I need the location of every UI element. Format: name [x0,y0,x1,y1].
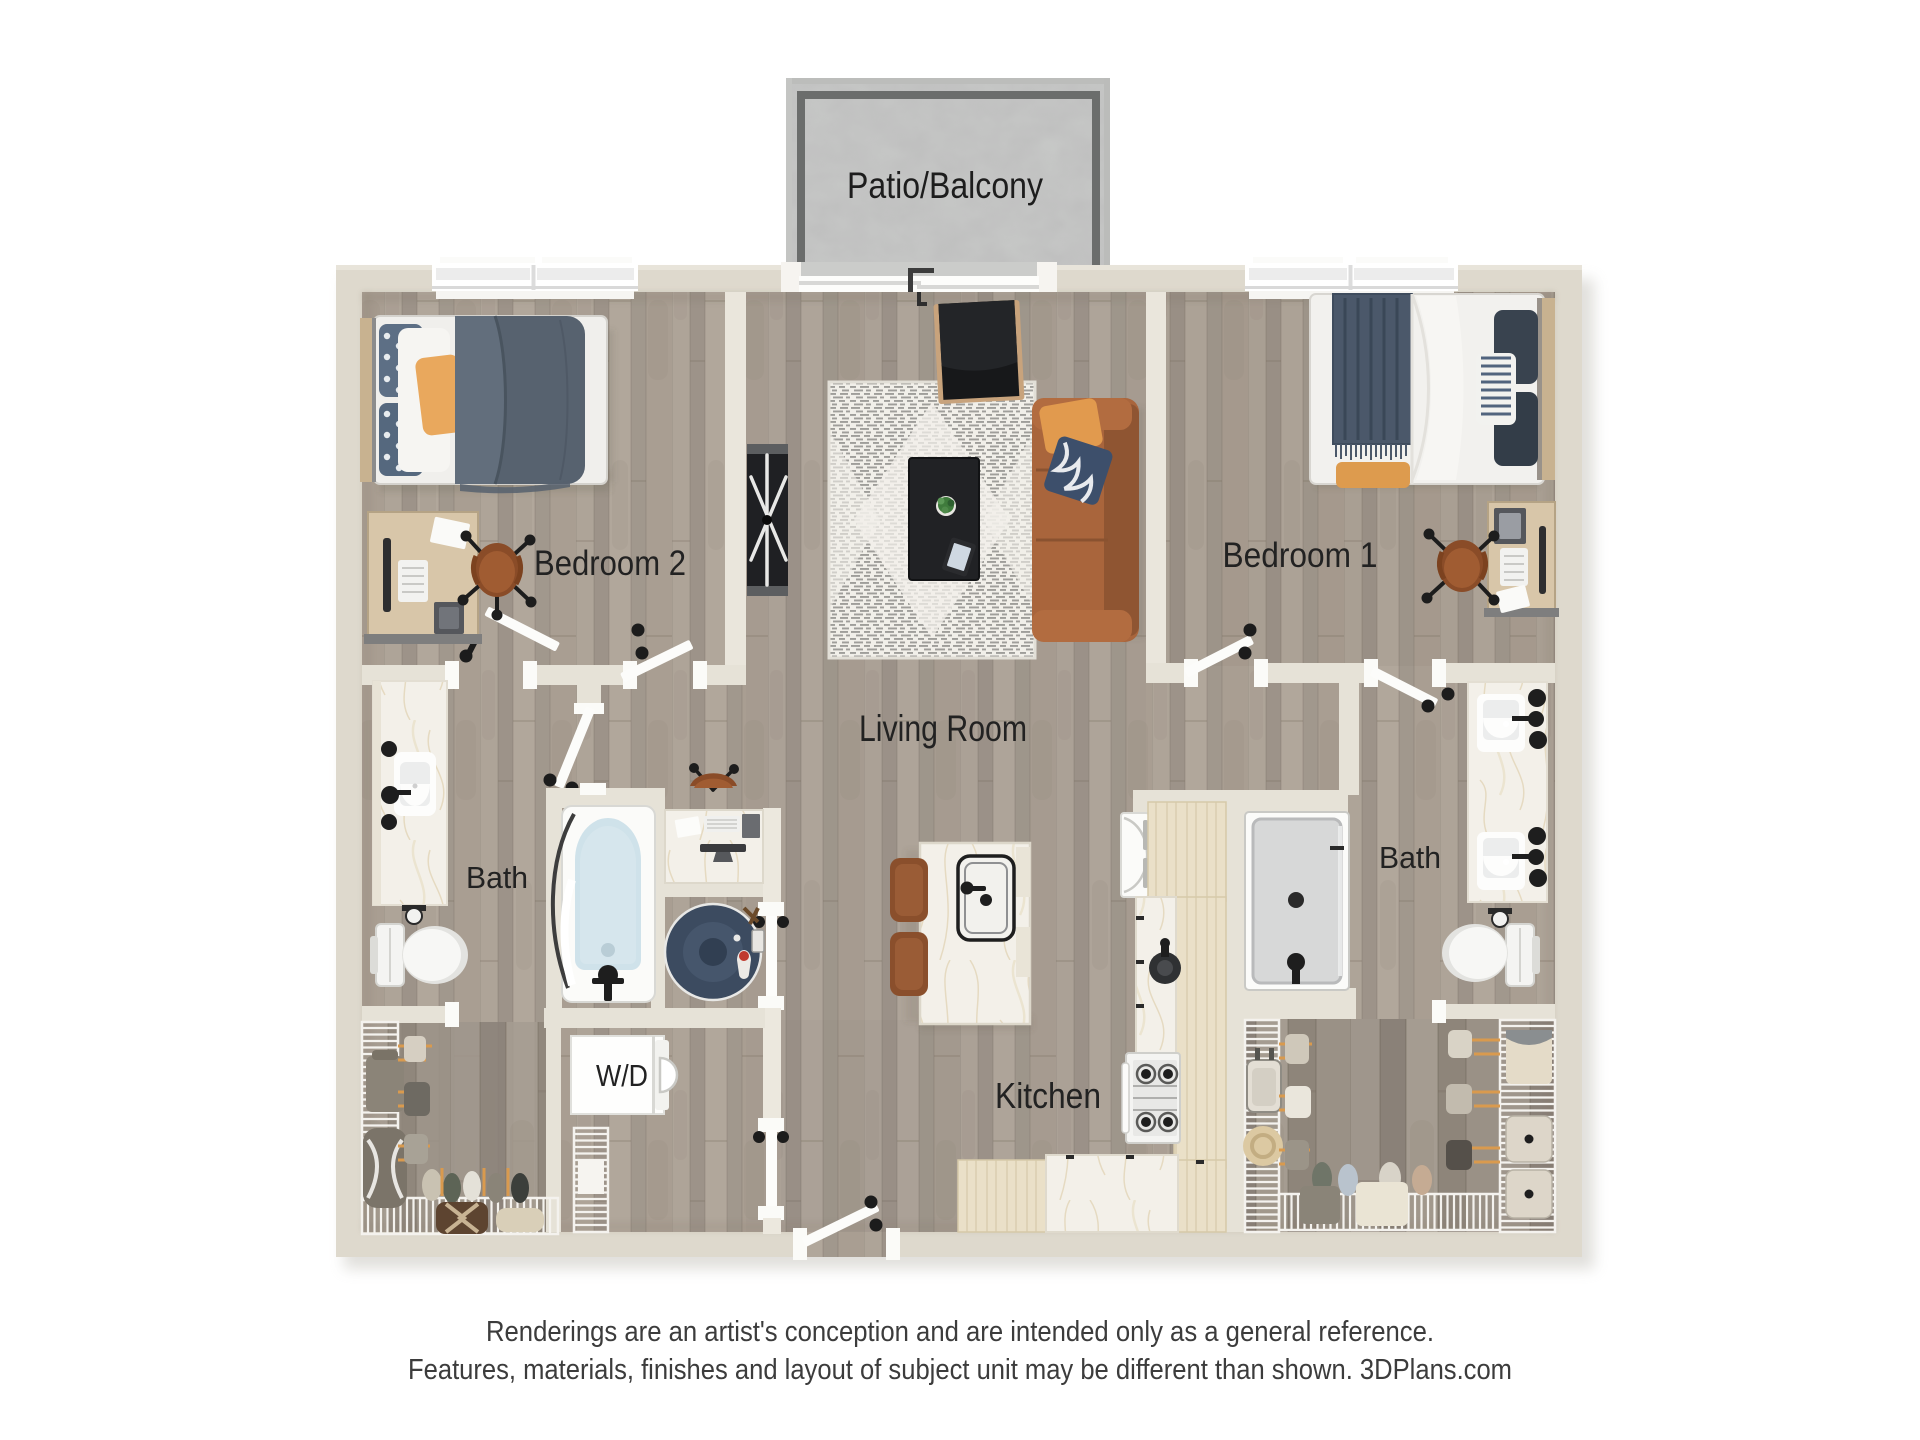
svg-text:Bath: Bath [466,860,528,895]
svg-text:W/D: W/D [596,1058,648,1093]
svg-text:Bath: Bath [1379,840,1441,875]
svg-text:Living Room: Living Room [859,708,1027,749]
svg-text:Renderings are an artist's con: Renderings are an artist's conception an… [486,1316,1434,1348]
svg-text:Bedroom 2: Bedroom 2 [534,544,686,583]
svg-text:Patio/Balcony: Patio/Balcony [847,165,1043,206]
svg-text:Kitchen: Kitchen [995,1075,1101,1116]
svg-text:Features, materials, finishes: Features, materials, finishes and layout… [408,1354,1512,1386]
svg-text:Bedroom 1: Bedroom 1 [1223,536,1378,575]
